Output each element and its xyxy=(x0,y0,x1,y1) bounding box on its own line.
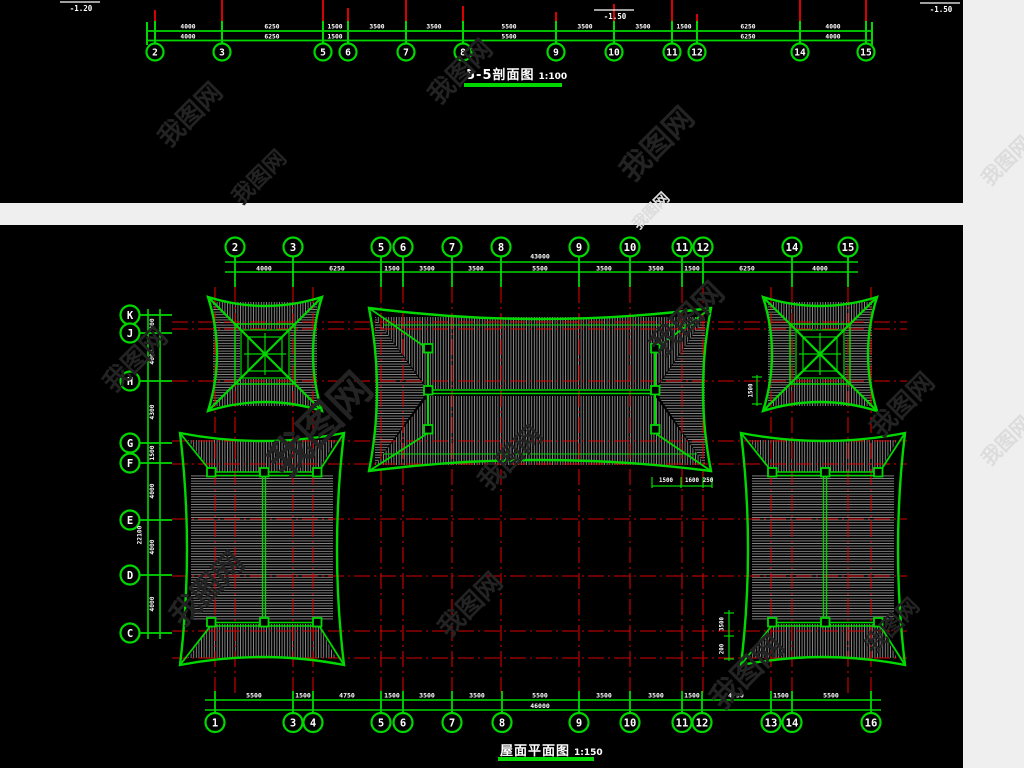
plan-left-dim: 4000 xyxy=(149,349,156,364)
detail-dim: 200 xyxy=(720,643,726,654)
plan-left-grid-bubble-D-label: D xyxy=(127,570,133,582)
plan-left-total: 22100 xyxy=(137,525,144,544)
plan-top-dim: 5500 xyxy=(532,264,548,272)
plan-bottom-grid-bubble-9-label: 9 xyxy=(576,717,582,729)
plan-bottom-grid-bubble-14-label: 14 xyxy=(786,717,799,729)
section-title-underline xyxy=(464,83,562,87)
section-dim: 1500 xyxy=(327,34,342,41)
detail-dim: 250 xyxy=(703,478,714,484)
watermark: 我图网 xyxy=(974,128,1024,191)
detail-dim: 1600 xyxy=(685,478,699,484)
plan-left-dim: 4000 xyxy=(149,596,156,611)
cad-drawing-preview: 2356789101112141540006250150035003500550… xyxy=(0,0,1024,768)
plan-top-grid-bubble-6-label: 6 xyxy=(400,242,406,254)
plan-left-grid-bubble-E-label: E xyxy=(127,515,133,527)
plan-bottom-grid-bubble-12-label: 12 xyxy=(696,717,709,729)
plan-top-grid-bubble-10-label: 10 xyxy=(624,242,637,254)
plan-bottom-total: 46000 xyxy=(530,702,550,710)
section-dim: 5500 xyxy=(501,24,516,31)
plan-top-grid-bubble-12-label: 12 xyxy=(697,242,710,254)
plan-bottom-dim: 1500 xyxy=(684,692,700,700)
plan-bottom-grid-bubble-6-label: 6 xyxy=(400,717,406,729)
section-panel: 2356789101112141540006250150035003500550… xyxy=(0,0,963,203)
section-dim: 3500 xyxy=(426,24,441,31)
plan-top-dim: 1500 xyxy=(684,264,700,272)
plan-left-dim: 4000 xyxy=(149,539,156,554)
section-grid-bubble-15-label: 15 xyxy=(860,47,872,58)
plan-top-dim: 1500 xyxy=(384,264,400,272)
plan-bottom-grid-bubble-4-label: 4 xyxy=(310,717,316,729)
plan-left-grid-bubble-G-label: G xyxy=(127,438,133,450)
elevation-text: -1.50 xyxy=(604,12,627,21)
section-dim: 5500 xyxy=(501,34,516,41)
detail-dim: 1500 xyxy=(749,383,755,397)
plan-left-dim: 1500 xyxy=(149,445,156,460)
plan-top-dim: 4000 xyxy=(256,264,272,272)
plan-top-grid-bubble-7-label: 7 xyxy=(449,242,455,254)
plan-bottom-grid-bubble-7-label: 7 xyxy=(449,717,455,729)
plan-top-grid-bubble-11-label: 11 xyxy=(676,242,689,254)
plan-top-grid-bubble-3-label: 3 xyxy=(290,242,296,254)
section-title-text: 5-5剖面图 xyxy=(466,68,535,83)
plan-bottom-grid-bubble-11-label: 11 xyxy=(676,717,689,729)
plan-bottom-dim: 1500 xyxy=(384,692,400,700)
section-dim: 6250 xyxy=(740,24,755,31)
section-grid-bubble-6-label: 6 xyxy=(345,47,351,58)
watermark: 我图网 xyxy=(974,408,1024,471)
plan-top-dim: 6250 xyxy=(739,264,755,272)
plan-top-dim: 3500 xyxy=(648,264,664,272)
section-dim: 3500 xyxy=(369,24,384,31)
plan-bottom-dim: 3500 xyxy=(469,692,485,700)
plan-bottom-grid-bubble-8-label: 8 xyxy=(499,717,505,729)
plan-bottom-dim: 3500 xyxy=(596,692,612,700)
section-grid-bubble-7-label: 7 xyxy=(403,47,409,58)
plan-bottom-dim: 4750 xyxy=(339,692,355,700)
section-dim: 6250 xyxy=(740,34,755,41)
section-grid-bubble-14-label: 14 xyxy=(794,47,806,58)
section-dim: 6250 xyxy=(264,34,279,41)
section-grid-bubble-8-label: 8 xyxy=(460,47,466,58)
section-grid-bubble-9-label: 9 xyxy=(553,47,559,58)
section-dim: 4000 xyxy=(180,24,195,31)
detail-dim: 3500 xyxy=(720,617,726,631)
section-grid-bubble-2-label: 2 xyxy=(152,47,158,58)
section-dim: 4000 xyxy=(825,24,840,31)
plan-top-grid-bubble-8-label: 8 xyxy=(498,242,504,254)
plan-left-dim: 4300 xyxy=(149,404,156,419)
plan-top-grid-bubble-2-label: 2 xyxy=(232,242,238,254)
plan-top-dim: 6250 xyxy=(329,264,345,272)
plan-left-grid-bubble-J-label: J xyxy=(127,328,133,340)
elevation-text: -1.20 xyxy=(70,4,93,13)
plan-bottom-dim: 5500 xyxy=(532,692,548,700)
plan-bottom-dim: 5500 xyxy=(246,692,262,700)
plan-top-dim: 3500 xyxy=(468,264,484,272)
section-dim: 4000 xyxy=(825,34,840,41)
section-grid-bubble-5-label: 5 xyxy=(320,47,326,58)
plan-bottom-dim: 5500 xyxy=(823,692,839,700)
plan-left-grid-bubble-K-label: K xyxy=(127,310,134,322)
plan-title-underline xyxy=(498,757,594,761)
plan-bottom-grid-bubble-3-label: 3 xyxy=(290,717,296,729)
section-dim: 6250 xyxy=(264,24,279,31)
section-dim: 1500 xyxy=(676,24,691,31)
section-grid-bubble-3-label: 3 xyxy=(219,47,225,58)
plan-bottom-grid-bubble-5-label: 5 xyxy=(378,717,384,729)
section-dim: 1500 xyxy=(327,24,342,31)
plan-left-grid-bubble-H-label: H xyxy=(127,376,133,388)
plan-left-dim: 4000 xyxy=(149,483,156,498)
plan-left-dim: 300 xyxy=(149,318,156,330)
section-dim: 3500 xyxy=(577,24,592,31)
section-title: 5-5剖面图1:100 xyxy=(466,64,567,83)
plan-top-grid-bubble-9-label: 9 xyxy=(576,242,582,254)
section-dim: 3500 xyxy=(635,24,650,31)
plan-top-grid-bubble-14-label: 14 xyxy=(786,242,799,254)
plan-bottom-grid-bubble-13-label: 13 xyxy=(765,717,778,729)
plan-bottom-grid-bubble-1-label: 1 xyxy=(212,717,218,729)
detail-dim: 1500 xyxy=(659,478,673,484)
section-grid-bubble-11-label: 11 xyxy=(666,47,678,58)
section-drawing: 2356789101112141540006250150035003500550… xyxy=(0,0,963,203)
plan-left-grid-bubble-C-label: C xyxy=(127,628,133,640)
plan-top-dim: 3500 xyxy=(596,264,612,272)
plan-top-grid-bubble-5-label: 5 xyxy=(378,242,384,254)
plan-top-dim: 4000 xyxy=(812,264,828,272)
section-dim: 4000 xyxy=(180,34,195,41)
plan-bottom-dim: 3500 xyxy=(648,692,664,700)
section-grid-bubble-10-label: 10 xyxy=(608,47,620,58)
plan-drawing: 2356789101112141540006250150035003500550… xyxy=(0,225,963,768)
plan-top-grid-bubble-15-label: 15 xyxy=(842,242,855,254)
plan-bottom-dim: 4750 xyxy=(728,692,744,700)
elevation-text: -1.50 xyxy=(930,5,953,14)
plan-top-total: 43000 xyxy=(530,253,550,261)
section-title-scale: 1:100 xyxy=(539,72,568,82)
section-grid-bubble-12-label: 12 xyxy=(691,47,702,58)
plan-left-grid-bubble-F-label: F xyxy=(127,458,133,470)
plan-bottom-grid-bubble-10-label: 10 xyxy=(624,717,637,729)
plan-bottom-grid-bubble-16-label: 16 xyxy=(865,717,878,729)
plan-top-dim: 3500 xyxy=(419,264,435,272)
plan-bottom-dim: 1500 xyxy=(295,692,311,700)
plan-bottom-dim: 1500 xyxy=(773,692,789,700)
plan-panel: 2356789101112141540006250150035003500550… xyxy=(0,225,963,768)
plan-bottom-dim: 3500 xyxy=(419,692,435,700)
